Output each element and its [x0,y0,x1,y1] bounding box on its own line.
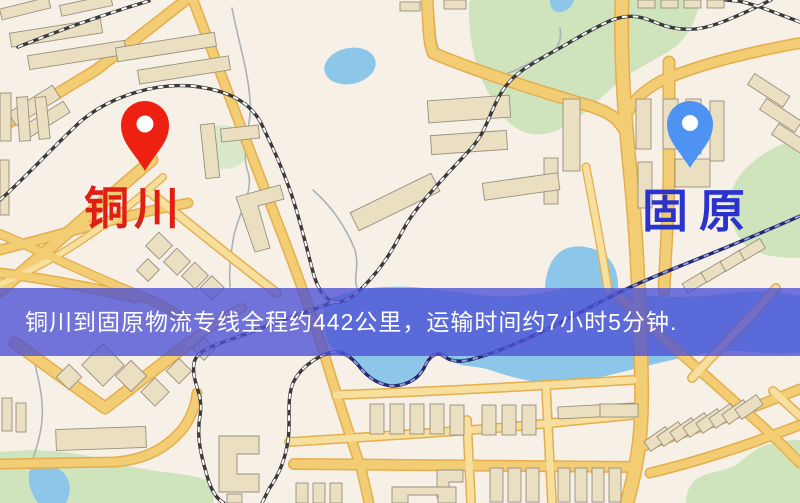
origin-pin-shape[interactable] [121,101,169,171]
origin-pin-icon[interactable] [121,101,169,171]
map-canvas[interactable] [0,0,800,503]
route-info-text: 铜川到固原物流专线全程约442公里，运输时间约7小时5分钟. [0,288,800,356]
map-screenshot: 铜川 固原 铜川到固原物流专线全程约442公里，运输时间约7小时5分钟. [0,0,800,503]
route-info-banner: 铜川到固原物流专线全程约442公里，运输时间约7小时5分钟. [0,288,800,356]
destination-pin-hole [682,115,698,131]
origin-pin-hole [137,116,154,133]
